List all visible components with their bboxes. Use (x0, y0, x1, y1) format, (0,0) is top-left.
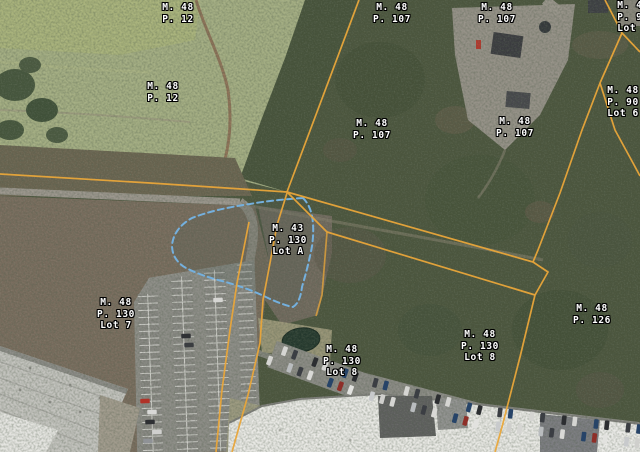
map-viewport[interactable]: M. 48 P. 12M. 48 P. 12M. 48 P. 107M. 48 … (0, 0, 640, 452)
parked-car (181, 334, 191, 339)
parked-car (143, 439, 153, 444)
aerial-imagery (0, 0, 640, 452)
parked-car (184, 343, 194, 348)
parked-car (147, 410, 157, 415)
parked-car (145, 420, 155, 425)
parked-car (152, 430, 162, 435)
parked-car (140, 399, 150, 404)
parked-car (213, 298, 223, 303)
